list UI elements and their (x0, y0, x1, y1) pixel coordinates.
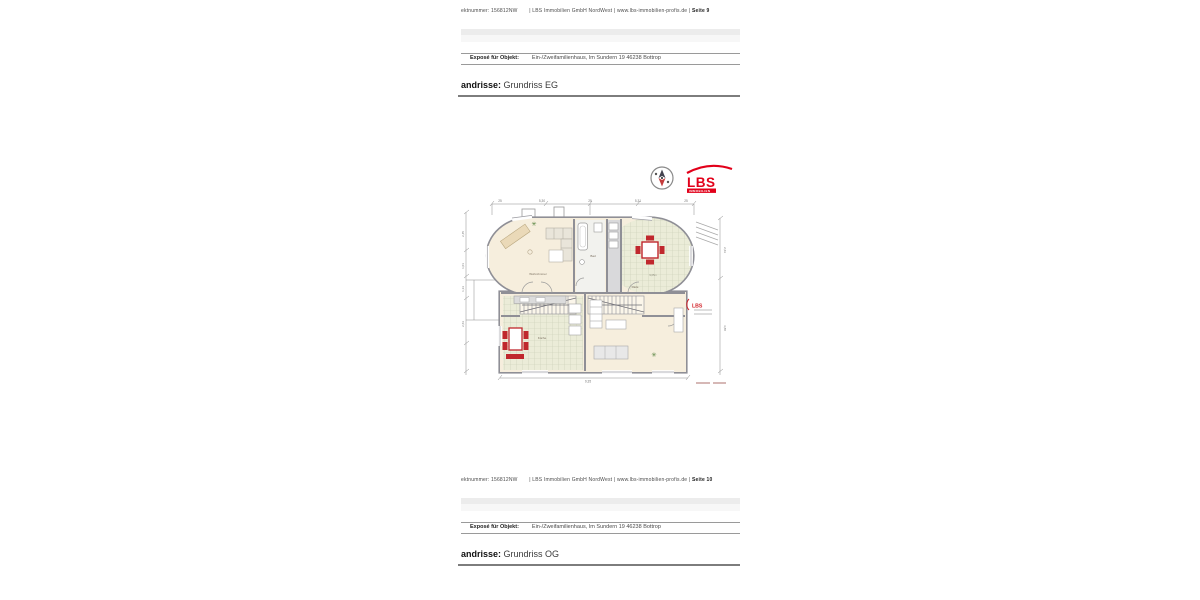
divider-bar-fade (461, 504, 740, 511)
lbs-swoosh (687, 166, 732, 173)
svg-text:1,01: 1,01 (461, 263, 465, 269)
sink (580, 260, 585, 265)
heading-rule (458, 95, 740, 97)
company-and-url: | LBS Immobilien GmbH NordWest | www.lbs… (529, 8, 690, 14)
lbs-logo-subtitle: IMMOBILIEN (689, 189, 710, 193)
coffee-table (549, 250, 563, 262)
dimension-label-bottom: 9,35 (585, 380, 591, 384)
page-meta-line: ektnummer: 156812NW | LBS Immobilien Gmb… (461, 477, 712, 483)
object-number: ektnummer: 156812NW (461, 8, 518, 14)
divider-bar-fade (461, 35, 740, 42)
expose-value: Ein-/Zweifamilienhaus, Im Sundern 19 462… (532, 55, 661, 61)
dimension-chain-top (490, 201, 696, 215)
heading-label: andrisse: (461, 549, 501, 559)
wardrobe (674, 308, 683, 332)
dimension-labels-top: 25 5,30 25 5,31 25 (498, 199, 688, 203)
object-row: Exposé für Objekt:Ein-/Zweifamilienhaus,… (470, 524, 661, 530)
dining-table (642, 242, 658, 258)
floorplan-figure: LBS IMMOBILIEN 25 5,30 25 5,31 25 (456, 160, 746, 392)
svg-text:3,88: 3,88 (723, 325, 727, 331)
expose-label: Exposé für Objekt: (470, 524, 519, 530)
svg-text:2,63: 2,63 (723, 247, 727, 253)
plant-icon: ✳ (651, 351, 657, 359)
floorplan-svg: LBS IMMOBILIEN 25 5,30 25 5,31 25 (456, 160, 746, 392)
svg-text:25: 25 (498, 199, 502, 203)
dimension-chain-bottom: 9,35 (498, 375, 690, 384)
section-heading: andrisse: Grundriss OG (461, 549, 559, 559)
page-number: Seite 10 (692, 477, 713, 483)
expose-value: Ein-/Zweifamilienhaus, Im Sundern 19 462… (532, 524, 661, 530)
svg-text:2,63: 2,63 (461, 321, 465, 327)
svg-text:1,13: 1,13 (461, 286, 465, 292)
expose-label: Exposé für Objekt: (470, 55, 519, 61)
lbs-logo: LBS IMMOBILIEN (687, 166, 732, 193)
svg-text:2,45: 2,45 (461, 231, 465, 237)
heading-rule (458, 564, 740, 566)
svg-text:5,31: 5,31 (635, 199, 641, 203)
svg-text:25: 25 (588, 199, 592, 203)
object-row: Exposé für Objekt:Ein-/Zweifamilienhaus,… (470, 55, 661, 61)
heading-label: andrisse: (461, 80, 501, 90)
utility-shelves (609, 223, 618, 248)
company-and-url: | LBS Immobilien GmbH NordWest | www.lbs… (529, 477, 690, 483)
exterior-steps (694, 222, 718, 314)
dimension-chain-right (718, 216, 723, 375)
bathtub (578, 223, 588, 250)
section-heading: andrisse: Grundriss EG (461, 80, 558, 90)
lbs-logo-text: LBS (687, 175, 716, 190)
sofa (594, 346, 628, 359)
dimension-labels-right: 2,63 3,88 (723, 247, 727, 331)
utility-cell-floor (607, 220, 620, 292)
rule-bottom (461, 64, 740, 65)
plant-icon: ✳ (531, 221, 536, 228)
hall-label: Diele (632, 285, 639, 289)
rule-top (461, 522, 740, 523)
dimension-labels-left: 2,45 1,01 1,13 2,63 (461, 231, 465, 327)
kitchen-label: Küche (538, 336, 547, 340)
svg-text:25: 25 (684, 199, 688, 203)
living-room-label: Wohnzimmer (529, 272, 547, 276)
side-table (606, 320, 626, 329)
kitchen-table (509, 328, 522, 350)
toilet (594, 223, 602, 232)
heading-value: Grundriss EG (504, 80, 559, 90)
lbs-stamp: LBS (687, 299, 703, 310)
page-meta-line: ektnummer: 156812NW | LBS Immobilien Gmb… (461, 8, 710, 14)
compass-icon (651, 167, 673, 189)
rule-top (461, 53, 740, 54)
page-number: Seite 9 (692, 8, 710, 14)
heading-value: Grundriss OG (504, 549, 560, 559)
kitchen-appliances (569, 304, 581, 335)
object-number: ektnummer: 156812NW (461, 477, 518, 483)
lbs-stamp-text: LBS (692, 304, 703, 310)
svg-text:5,30: 5,30 (539, 199, 545, 203)
rule-bottom (461, 533, 740, 534)
bath-label: Bad (590, 254, 596, 258)
dining-area-label: 9,65m (649, 273, 656, 277)
